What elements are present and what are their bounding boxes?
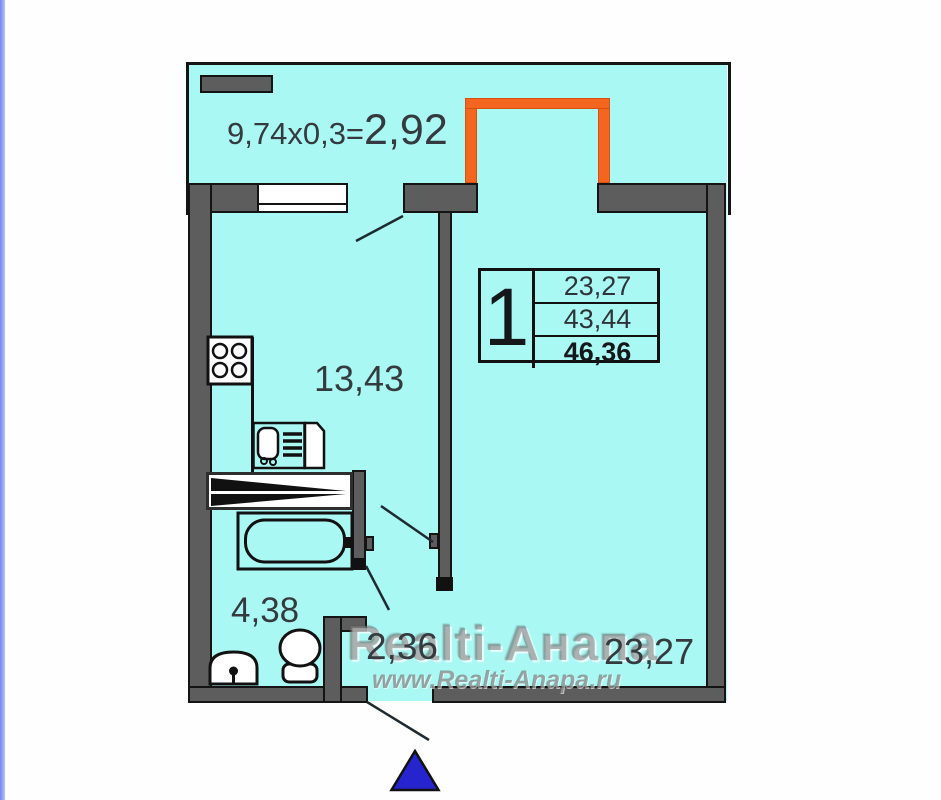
balcony-formula: 9,74x0,3= <box>227 116 364 152</box>
floorplan-screenshot: 1 23,27 43,44 46,36 9,74x0,3= 2,92 13,43… <box>0 0 941 800</box>
wardrobe-wedge-top <box>211 478 346 491</box>
balcony-door-frame-left <box>465 98 477 183</box>
hallway-wall-vertical <box>323 616 342 703</box>
bathroom-wall-end-cap <box>351 558 366 570</box>
top-wall-middle-segment <box>403 183 478 213</box>
right-wall <box>706 183 726 702</box>
hallway-area-label: 2,36 <box>366 626 438 668</box>
info-row-total-area: 46,36 <box>535 335 660 368</box>
left-edge-stripe <box>0 0 5 800</box>
bathroom-area-label: 4,38 <box>231 591 299 631</box>
watermark-website: www.Realti-Anapa.ru <box>372 666 621 695</box>
partition-wall-living-room <box>438 211 452 579</box>
balcony-wall-pier <box>200 75 273 93</box>
partition-wall-end-cap <box>436 577 453 591</box>
info-row-area: 43,44 <box>535 302 660 335</box>
kitchen-area-label: 13,43 <box>314 358 404 400</box>
window-sill-line <box>259 203 346 205</box>
kitchen-window <box>257 183 348 213</box>
balcony-result: 2,92 <box>364 106 448 155</box>
apartment-number: 1 <box>481 271 535 368</box>
apartment-info-box: 1 23,27 43,44 46,36 <box>478 268 660 363</box>
entrance-door-swing <box>367 702 429 740</box>
living-door-jamb <box>429 533 439 549</box>
left-wall <box>188 183 212 702</box>
info-row-living-area: 23,27 <box>535 271 660 302</box>
wardrobe-symbol <box>206 472 353 510</box>
living-room-area-label: 23,27 <box>604 631 694 673</box>
balcony-door-frame-top <box>465 98 610 109</box>
bathroom-door-jamb <box>365 536 374 551</box>
balcony-door-frame-right <box>598 98 610 183</box>
entrance-arrow-icon <box>392 751 439 790</box>
bathroom-right-wall <box>352 470 366 562</box>
balcony-area-label: 9,74x0,3= 2,92 <box>227 106 448 155</box>
wardrobe-wedge-bottom <box>211 494 346 506</box>
